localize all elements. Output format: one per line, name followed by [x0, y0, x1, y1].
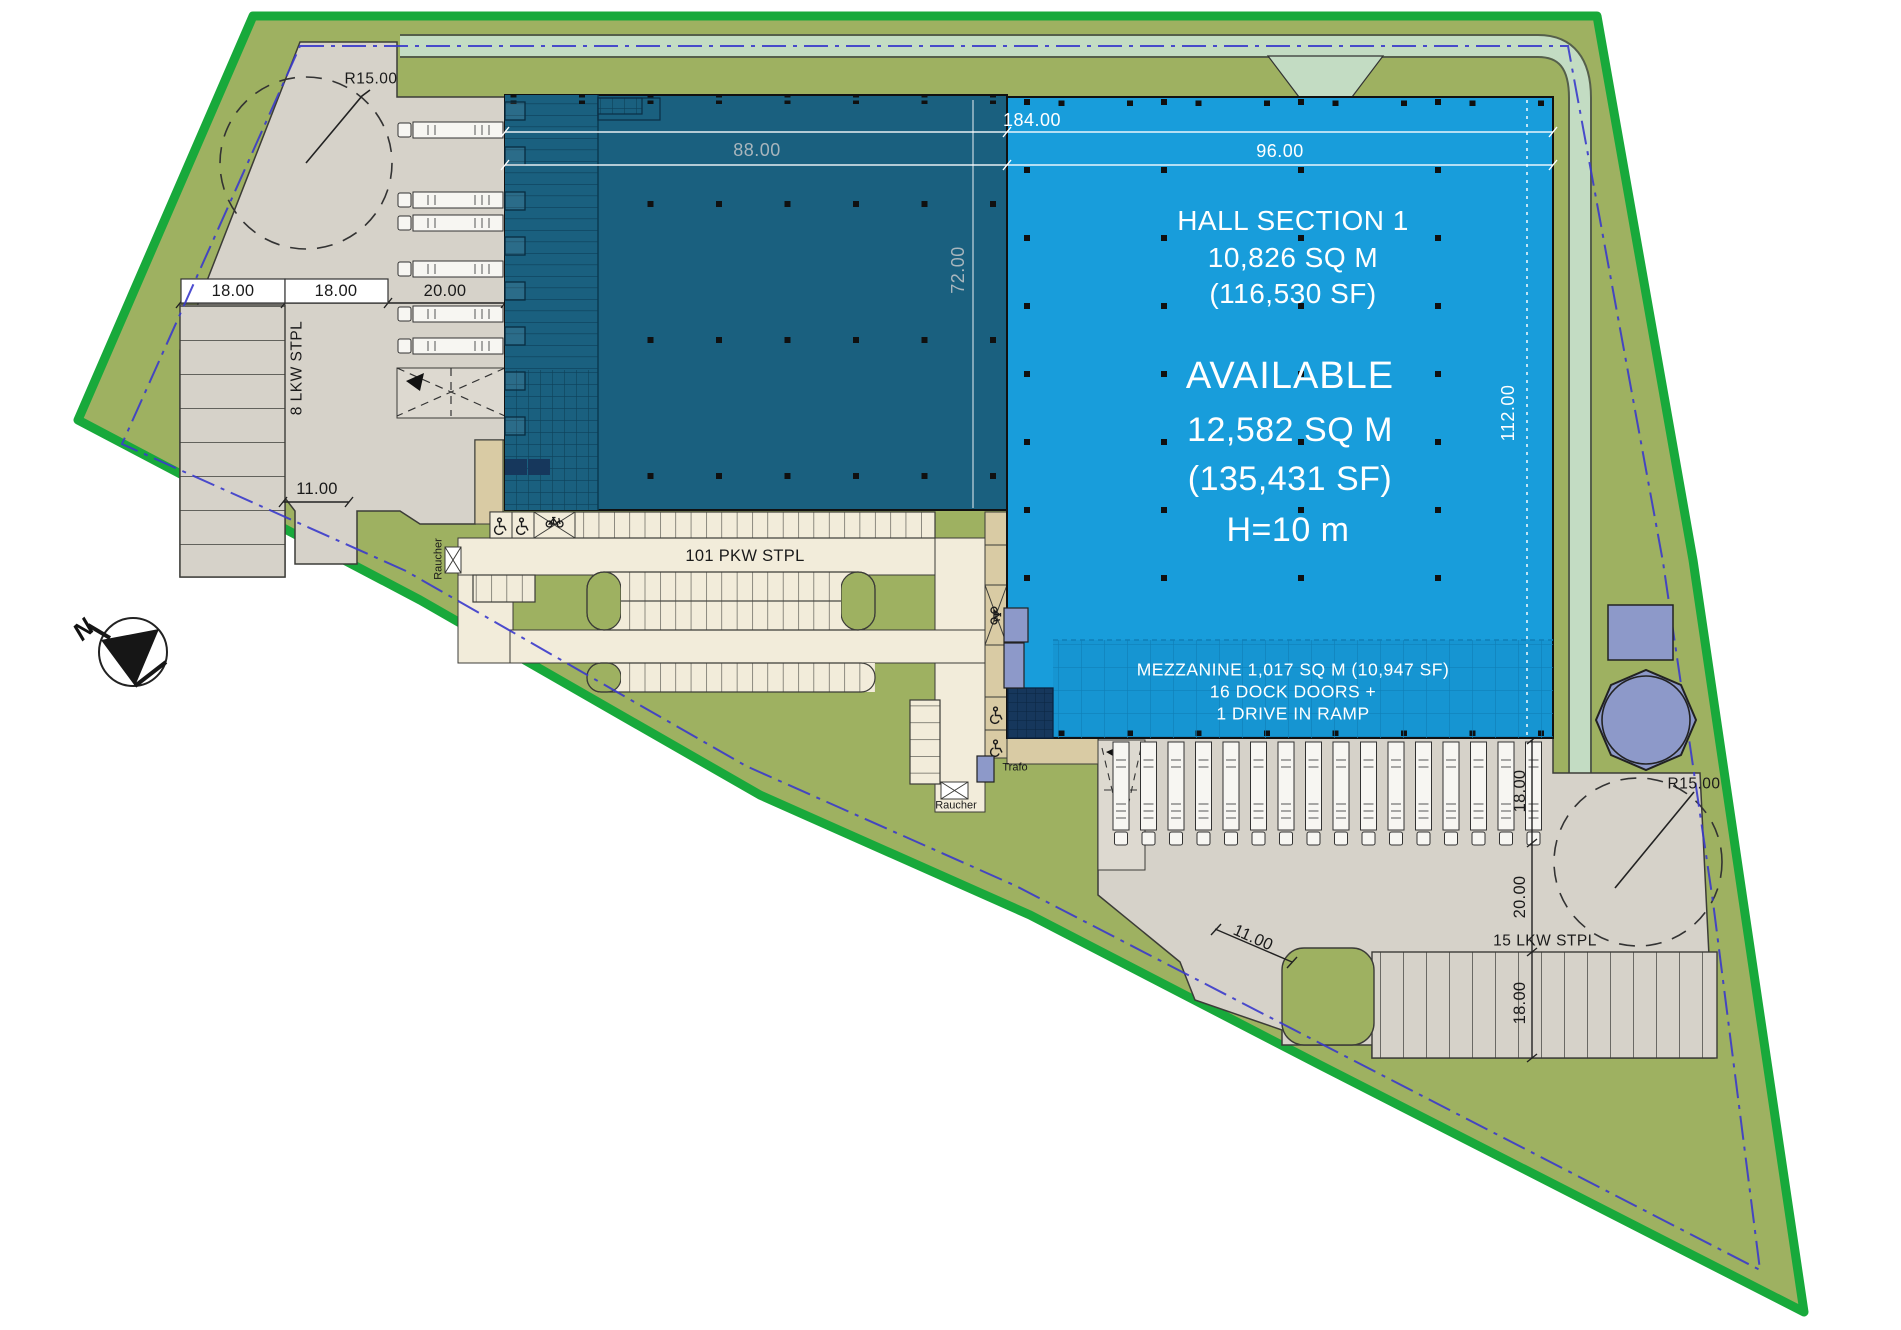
truck-parking-south-label: 15 LKW STPL: [1493, 933, 1597, 949]
transformer-label: Trafo: [1002, 763, 1027, 774]
clear-height: H=10 m: [1227, 513, 1350, 547]
dim-let-depth: 72.00: [949, 246, 967, 294]
bike-parking-nw: [534, 512, 575, 538]
north-arrow: [88, 618, 167, 686]
drive-in-ramp-west: [397, 368, 505, 418]
truck-stalls-west: [180, 305, 285, 577]
dim-nw-apron: 20.00: [424, 283, 467, 300]
radius-label-se: R15.00: [1668, 776, 1721, 792]
dim-nw-stall: 18.00: [212, 283, 255, 300]
southeast-yard: [1098, 727, 1722, 1062]
site-plan: HALL SECTION 1 10,826 SQ M (116,530 SF) …: [0, 0, 1901, 1330]
dim-available-width: 96.00: [1256, 142, 1304, 160]
stall-row-2: [587, 663, 875, 692]
dim-se-stall: 18.00: [1512, 982, 1529, 1025]
mezzanine-line3: 1 DRIVE IN RAMP: [1216, 705, 1369, 723]
status-available: AVAILABLE: [1186, 357, 1394, 395]
site-plan-drawing: [0, 0, 1901, 1330]
hall-area-sqm: 10,826 SQ M: [1208, 244, 1378, 272]
transformer-box: [977, 756, 994, 782]
dim-total-width: 184.00: [1003, 111, 1061, 129]
available-sqm: 12,582 SQ M: [1187, 413, 1393, 447]
walkway-west: [475, 440, 503, 524]
parking-aisle-2: [510, 630, 985, 663]
office-grid-west: [505, 370, 598, 510]
smoking-south-label: Raucher: [935, 801, 977, 812]
dim-se-apron: 18.00: [1512, 770, 1529, 813]
dim-nw-gate: 11.00: [296, 481, 338, 498]
truck-stalls-south: [1372, 952, 1717, 1058]
stall-stub-west: [473, 575, 535, 602]
dim-nw-aisle: 18.00: [315, 283, 358, 300]
truck-parking-west-label: 8 LKW STPL: [289, 321, 305, 416]
dim-se-aisle: 20.00: [1512, 876, 1529, 919]
office-block-south: [1008, 688, 1053, 738]
walkway-south: [1007, 738, 1098, 764]
entrance-block: [528, 459, 550, 475]
stair-core: [598, 98, 642, 114]
dim-available-depth: 112.00: [1499, 385, 1517, 442]
available-sf: (135,431 SF): [1188, 462, 1392, 496]
retention-tank: [1608, 605, 1673, 660]
mezzanine-line2: 16 DOCK DOORS +: [1210, 683, 1377, 701]
retention-basin: [1596, 670, 1696, 770]
stall-column-south: [910, 700, 940, 784]
smoking-area-west-box: [445, 547, 461, 573]
smoking-area-south-box: [941, 782, 968, 799]
radius-label-nw: R15.00: [345, 71, 398, 87]
dim-let-width: 88.00: [733, 141, 781, 159]
hall-title: HALL SECTION 1: [1177, 207, 1409, 235]
stall-island-1: [587, 572, 875, 630]
mezzanine-line1: MEZZANINE 1,017 SQ M (10,947 SF): [1137, 661, 1450, 679]
exterior-stair: [1004, 608, 1028, 642]
car-parking-label: 101 PKW STPL: [685, 548, 804, 565]
hall-area-sf: (116,530 SF): [1209, 280, 1376, 308]
exterior-stair: [1004, 643, 1024, 688]
entrance-block: [505, 459, 527, 475]
smoking-west-label: Raucher: [434, 538, 445, 580]
